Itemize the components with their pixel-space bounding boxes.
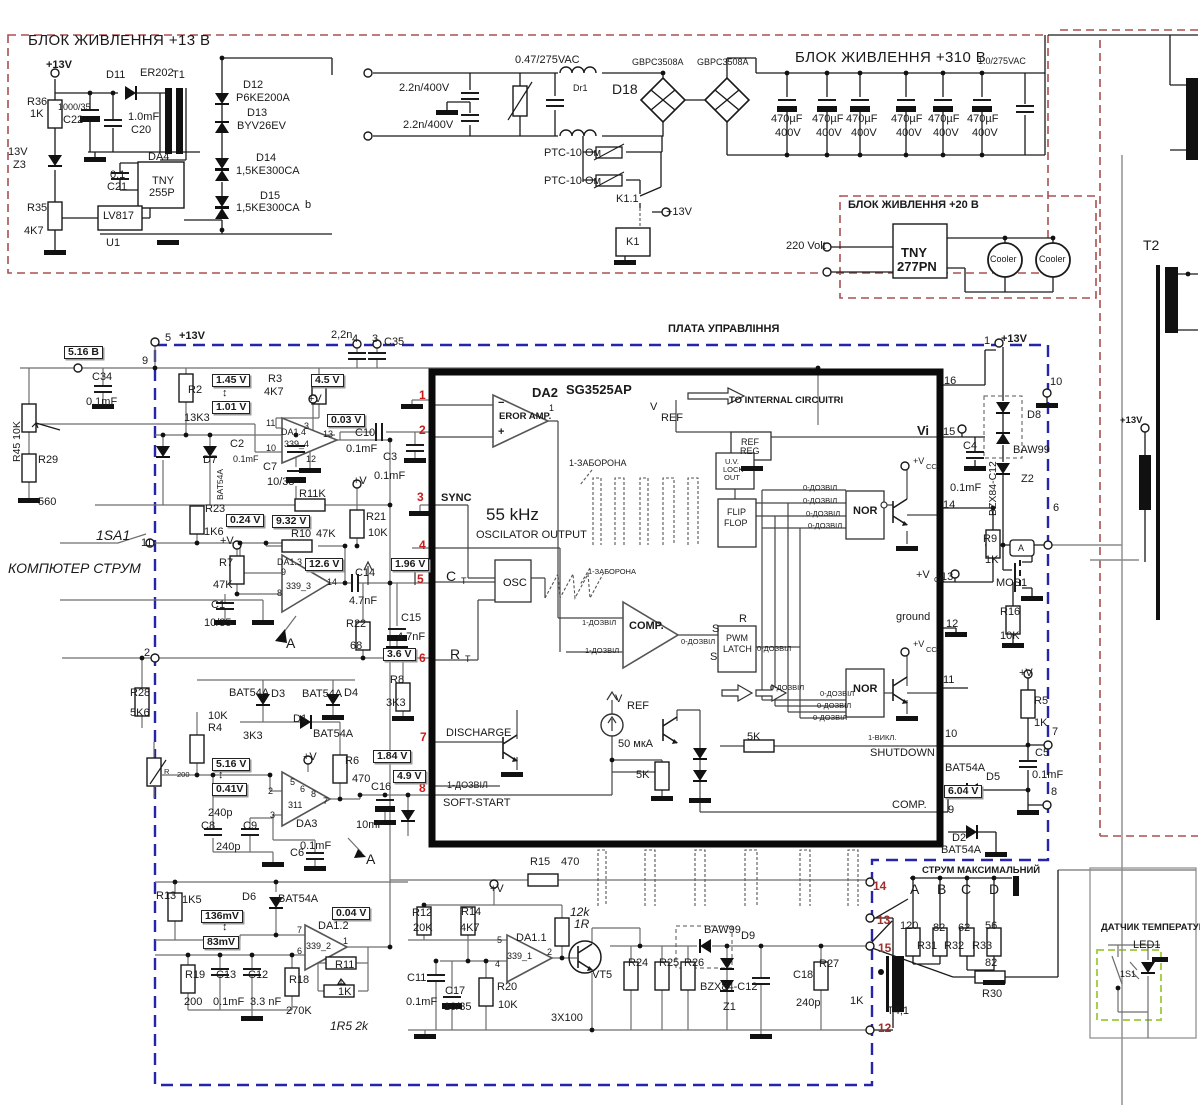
bottom-label-4: 4 <box>495 960 500 969</box>
left-label-1-96-v: 1.96 V <box>391 558 429 571</box>
chip-label-v: V <box>615 694 622 706</box>
left-label-10-35: 10/35 <box>204 618 232 630</box>
bottom-label-r26: R26 <box>684 958 704 970</box>
chip-label-0-дозвіл: 0-ДОЗВІЛ <box>803 484 837 492</box>
control_top-label-c7: C7 <box>263 462 277 474</box>
da3_area-label-bat54a: BAT54A <box>229 688 269 700</box>
chip-label-+v: +V <box>913 640 924 649</box>
right_rail-label-d2: D2 <box>952 833 966 845</box>
chip-label-15: 15 <box>943 427 955 439</box>
bottom_right-label-d: D <box>989 882 999 897</box>
left-label-9-32-v: 9.32 V <box>272 515 310 528</box>
bottom_right-label-120: 120 <box>900 921 918 933</box>
chip-label-+v: +V <box>913 457 924 466</box>
bottom-label-0-1mf: 0.1mF <box>213 997 244 1009</box>
da3_area-label-da3: DA3 <box>296 819 317 831</box>
da3_area-label-8: 8 <box>311 790 316 799</box>
chip-label-5k: 5K <box>636 770 649 782</box>
chip-label-1: 1 <box>419 389 426 402</box>
mains-label-ptc-10-ом: PTC-10 Ом <box>544 176 601 188</box>
bottom_right-label-b: B <box>937 882 946 897</box>
psu13-label-er202: ER202 <box>140 68 174 80</box>
bottom_right-label-56: 56 <box>985 921 997 933</box>
psu13-label-d12: D12 <box>243 80 263 92</box>
control_top-label-13: 13 <box>323 430 333 439</box>
control_top-label-d7: D7 <box>203 455 217 467</box>
right_rail-label-10k: 10K <box>1000 631 1020 643</box>
da3_area-label-240p: 240p <box>216 842 240 854</box>
da3_area-label-240p: 240p <box>208 808 232 820</box>
bottom-label-83mv: 83mV <box>203 936 239 949</box>
control_top-label-r21: R21 <box>366 512 386 524</box>
psu13-label-1-5ke300ca: 1,5KE300CA <box>236 203 300 215</box>
control_top-label-0-1mf: 0.1mF <box>346 444 377 456</box>
control_top-label-4k7: 4K7 <box>264 387 284 399</box>
chip-label-1: 1 <box>549 404 554 413</box>
psu-13v-title: БЛОК ЖИВЛЕННЯ +13 В <box>28 33 210 49</box>
control_top-label-c2: C2 <box>230 439 244 451</box>
right_rail-label-6-04-v: 6.04 V <box>944 785 982 798</box>
right_rail-label-bat54a: BAT54A <box>941 845 981 857</box>
bottom_right-label-1s1: 1S1 <box>1120 970 1136 979</box>
right_rail-label-r9: R9 <box>983 534 997 546</box>
da3_area-label-c16: C16 <box>371 782 391 794</box>
chip-label-1-викл: 1-ВИКЛ. <box>868 734 896 742</box>
psu13-label-d11: D11 <box>106 70 125 82</box>
bottom-label-200: 200 <box>184 997 202 1009</box>
psu13-label-1-5ke300ca: 1,5KE300CA <box>236 166 300 178</box>
chip-label-pwm: PWM <box>726 634 748 643</box>
left-label-3k3: 3K3 <box>386 698 406 710</box>
left-label-12-6-v: 12.6 V <box>305 558 343 571</box>
chip-label-: − <box>498 398 504 410</box>
psu310-label-470µf: 470µF <box>812 114 843 126</box>
psu13-label-r35: R35 <box>27 203 47 215</box>
control_top-label-bat54a: BAT54A <box>216 469 225 500</box>
da3_area-label-2: 2 <box>268 787 273 796</box>
da3_area-label-4-9-v: 4.9 V <box>393 770 426 783</box>
bottom_right-label-led1: LED1 <box>1133 940 1161 952</box>
control_top-label-1-45-v: 1.45 V <box>212 374 250 387</box>
control_top-label-c35: C35 <box>384 337 404 349</box>
control_top-label-10-35: 10/35 <box>267 477 295 489</box>
psu13-label-p6ke200a: P6KE200A <box>236 93 290 105</box>
chip-label-cc: CC <box>926 646 937 654</box>
control_top-label-c10: C10 <box>355 428 375 440</box>
bottom_right-label-a: A <box>910 882 919 897</box>
right_rail-label-+13v: +13V <box>1001 334 1027 346</box>
da3_area-label-c9: C9 <box>243 821 257 833</box>
chip-label-out: OUT <box>724 474 740 482</box>
psu13-label-u1: U1 <box>106 238 120 250</box>
t2-label-+13v: +13V <box>1120 416 1142 426</box>
psu310-label-400v: 400V <box>775 128 801 140</box>
psu13-label-0-1: 0.1 <box>110 170 125 182</box>
bottom-label-10-35: 10/35 <box>444 1002 472 1014</box>
psu20-label-tny: TNY <box>901 246 927 260</box>
chip-label-0-дозвіл: 0-ДОЗВІЛ <box>803 497 837 505</box>
chip-label-comp: COMP. <box>629 621 664 633</box>
chip-label-ref: REF <box>627 701 649 713</box>
da3_area-label-d3: D3 <box>271 689 285 701</box>
bottom-label-10k: 10K <box>498 1000 518 1012</box>
chip-label-sg3525ap: SG3525AP <box>566 383 632 397</box>
chip-label-55-khz: 55 kHz <box>486 506 539 524</box>
bottom-label-1k: 1K <box>338 987 351 999</box>
psu20-label-cooler: Cooler <box>1039 255 1066 264</box>
bottom-label-r12: R12 <box>412 908 432 920</box>
bottom_right-label-12: 12 <box>878 1022 891 1035</box>
psu13-label-d13: D13 <box>247 108 267 120</box>
left-label-r29: R29 <box>38 455 58 467</box>
da3_area-label-6: 6 <box>300 785 305 794</box>
psu13-label-255p: 255P <box>149 188 175 200</box>
chip-label-4: 4 <box>419 539 426 552</box>
current-select-title: СТРУМ МАКСИМАЛЬНИЙ <box>922 866 1040 876</box>
chip-label-+: + <box>498 427 504 439</box>
bottom-label-r20: R20 <box>497 982 517 994</box>
chip-label-11: 11 <box>943 675 954 687</box>
psu13-label-1k: 1K <box>30 109 43 121</box>
bottom_right-label-62: 62 <box>958 923 970 935</box>
psu-20v-title: БЛОК ЖИВЛЕННЯ +20 В <box>848 200 979 212</box>
bottom-label-c11: C11 <box>407 973 426 985</box>
psu13-label-t1: T1 <box>172 70 185 82</box>
bottom_right-label-82: 82 <box>985 958 997 970</box>
da3_area-label-5: 5 <box>290 778 295 787</box>
bottom-label-baw99: BAW99 <box>704 925 741 937</box>
bottom-label-20k: 20K <box>413 923 433 935</box>
mains-label-2-2n-400v: 2.2n/400V <box>399 83 449 95</box>
left-label-r45-10k: R45 10K <box>12 421 23 462</box>
bottom-label-c17: C17 <box>445 986 465 998</box>
psu13-label-da4: DA4 <box>148 152 169 164</box>
chip-label-0-дозвіл: 0-ДОЗВІЛ <box>757 645 791 653</box>
left-label-8: 8 <box>277 589 282 598</box>
control_top-label-5-16-в: 5.16 В <box>64 346 103 359</box>
control_top-label-12: 12 <box>306 455 316 464</box>
chip-label-0-дозвіл: 0-ДОЗВІЛ <box>813 714 847 722</box>
bottom_right-label-82: 82 <box>933 923 945 935</box>
control_top-label-r2: R2 <box>188 385 202 397</box>
da3_area-label-470: 470 <box>352 774 370 786</box>
control_top-label-+v: +V <box>353 476 367 488</box>
mains-label-dr1: Dr1 <box>573 84 588 93</box>
da3_area-label-200: 200 <box>177 771 190 779</box>
left-label-5k6: 5K6 <box>130 708 150 720</box>
chip-label-flip: FLIP <box>727 508 746 517</box>
chip-label-s: S <box>712 624 719 636</box>
psu310-label-400v: 400V <box>972 128 998 140</box>
left-label-c14: C14 <box>355 568 375 580</box>
left-label-a: A <box>286 636 295 651</box>
right_rail-label-r5: R5 <box>1034 696 1048 708</box>
left-label-r8: R8 <box>390 675 404 687</box>
right_rail-label-bat54a: BAT54A <box>945 763 985 775</box>
psu310-label-400v: 400V <box>896 128 922 140</box>
da3_area-label-3k3: 3K3 <box>243 731 263 743</box>
right_rail-label-d5: D5 <box>986 772 1000 784</box>
bottom-label-6: 6 <box>297 947 302 956</box>
bottom_right-label-r31: R31 <box>917 941 937 953</box>
bottom-label-r14: R14 <box>461 907 481 919</box>
bottom_right-label-13: 13 <box>877 914 890 927</box>
control-board-title: ПЛАТА УПРАВЛІННЯ <box>668 324 779 336</box>
psu13-label-+13v: +13V <box>46 60 72 72</box>
chip-label-flop: FLOP <box>724 519 748 528</box>
chip-label-16: 16 <box>944 376 956 388</box>
left-label-560: 560 <box>38 497 56 509</box>
right_rail-label-8: 8 <box>1051 787 1057 799</box>
bottom_right-label-r32: R32 <box>944 941 964 953</box>
bottom-label-3-3-nf: 3.3 nF <box>250 997 281 1009</box>
mains-label-d18: D18 <box>612 82 638 97</box>
mains-label-gbpc3508a: GBPC3508A <box>632 58 684 67</box>
left-label-r28: R28 <box>130 688 150 700</box>
bottom_right-label-14: 14 <box>873 880 886 893</box>
bottom-label-0-1mf: 0.1mF <box>406 997 437 1009</box>
bottom-label-1k: 1K <box>850 996 863 1008</box>
bottom-label-c18: C18 <box>793 970 813 982</box>
psu310-label-400v: 400V <box>816 128 842 140</box>
mains-label-+13v: +13V <box>666 207 692 219</box>
chip-label-3: 3 <box>417 491 424 504</box>
control_top-label-r3: R3 <box>268 374 282 386</box>
control_top-label-c3: C3 <box>383 452 397 464</box>
mains-label-k1-1: K1.1 <box>616 194 639 206</box>
chip-label-vi: Vi <box>917 424 929 438</box>
psu310-label-470µf: 470µF <box>928 114 959 126</box>
schematic-labels: БЛОК ЖИВЛЕННЯ +13 В+13VD11ER202T1R361K10… <box>0 0 1200 1116</box>
right_rail-label-d8: D8 <box>1027 410 1041 422</box>
da3_area-label-10mf: 10mF <box>356 820 384 832</box>
chip-label-5k: 5K <box>747 732 760 744</box>
bottom_right-label-t4-1: T4,1 <box>887 1006 909 1018</box>
left-label-+v: +V <box>220 536 234 548</box>
bottom_right-label-r33: R33 <box>972 941 992 953</box>
bottom-label-470: 470 <box>561 857 579 869</box>
chip-label-da2: DA2 <box>532 386 558 400</box>
psu13-label-r36: R36 <box>27 97 47 109</box>
da3_area-label-r4: R4 <box>208 723 222 735</box>
chip-label-t: T <box>465 655 471 664</box>
control_top-label-9: 9 <box>142 356 148 368</box>
bottom-label-vt5: VT5 <box>592 970 612 982</box>
da3_area-label-d4: D4 <box>344 688 358 700</box>
psu13-label-tny: TNY <box>152 176 174 188</box>
chip-label-10: 10 <box>945 729 957 741</box>
da3_area-label-r6: R6 <box>345 756 359 768</box>
mains-label-k1: K1 <box>626 237 639 249</box>
bottom-label-339-2: 339_2 <box>306 942 331 951</box>
chip-label-0-дозвіл: 0-ДОЗВІЛ <box>817 702 851 710</box>
psu13-label-d15: D15 <box>260 191 280 203</box>
da3_area-label-0-1mf: 0.1mF <box>300 841 331 853</box>
t2-label-t2: T2 <box>1143 238 1159 253</box>
da3_area-label-1-84-v: 1.84 V <box>373 750 411 763</box>
da3_area-label-c8: C8 <box>201 821 215 833</box>
bottom-label-240p: 240p <box>796 998 820 1010</box>
left-label-c1: C1 <box>211 600 225 612</box>
bottom-label-2: 2 <box>547 948 552 957</box>
bottom-label-z1: Z1 <box>723 1002 736 1014</box>
bottom-label-r18: R18 <box>289 975 309 987</box>
bottom-label-5: 5 <box>497 936 502 945</box>
psu13-label-z3: Z3 <box>13 160 26 172</box>
chip-label-14: 14 <box>943 500 955 512</box>
bottom-label-c12: C12 <box>248 970 268 982</box>
bottom-label-0-04-v: 0.04 V <box>332 907 370 920</box>
da3_area-label-7: 7 <box>323 797 328 806</box>
control_top-label-13k3: 13K3 <box>184 413 210 425</box>
da3_area-label-bat54a: BAT54A <box>313 729 353 741</box>
da3_area-label-a: A <box>366 852 375 867</box>
bottom-label-d9: D9 <box>741 931 755 943</box>
right_rail-label-z2: Z2 <box>1021 474 1034 486</box>
control_top-label-c34: C34 <box>92 372 112 384</box>
schematic-canvas: OSC <box>0 0 1200 1116</box>
da3_area-label-r: R <box>164 768 169 776</box>
right_rail-label-c5: C5 <box>1035 748 1049 760</box>
chip-label-1-дозвіл: 1-ДОЗВІЛ <box>582 619 616 627</box>
chip-label-comp: COMP. <box>892 800 927 812</box>
psu20-label-220-volt: 220 Volt <box>786 241 826 253</box>
chip-label-to-internal-circuitri: TO INTERNAL CIRCUITRI <box>729 396 843 406</box>
bottom-label-r19: R19 <box>185 970 205 982</box>
control_top-label-1-01-v: 1.01 V <box>212 401 250 414</box>
left-label-4-7nf: 4.7nF <box>349 596 377 608</box>
bottom-label-r11: R11 <box>335 960 354 972</box>
da3_area-label-d1: D1 <box>293 714 307 726</box>
right_rail-label-0-1mf: 0.1mF <box>950 483 981 495</box>
bottom-label-+v: +V <box>490 884 504 896</box>
bottom-label-r24: R24 <box>628 958 648 970</box>
right_rail-label-baw99: BAW99 <box>1013 445 1050 457</box>
mains-label-0-47-275vac: 0.47/275VAC <box>515 55 580 67</box>
control_top-label-: ↕ <box>222 388 228 400</box>
bottom-label-d6: D6 <box>242 892 256 904</box>
left-label-r7: R7 <box>219 558 233 570</box>
psu13-label-byv26ev: BYV26EV <box>237 121 286 133</box>
left-label-c15: C15 <box>401 613 421 625</box>
chip-label-0-дозвіл: 0-ДОЗВІЛ <box>806 510 840 518</box>
chip-label-cc: CC <box>926 463 937 471</box>
psu310-label-1-0-275vac: 1.0/275VAC <box>978 57 1026 66</box>
bottom_right-label-r30: R30 <box>982 989 1002 1001</box>
control_top-label-0-1mf: 0.1mF <box>374 471 405 483</box>
chip-label-reg: REG <box>740 447 760 456</box>
chip-label-v: V <box>650 402 657 414</box>
psu310-label-470µf: 470µF <box>846 114 877 126</box>
left-label-47k: 47K <box>316 529 336 541</box>
bottom-label-4k7: 4K7 <box>460 923 480 935</box>
bottom-label-7: 7 <box>297 926 302 935</box>
bottom-label-c13: C13 <box>216 970 236 982</box>
right_rail-label-c4: C4 <box>963 441 977 453</box>
bottom-label-339-1: 339_1 <box>507 952 532 961</box>
chip-label-eror-amp: EROR AMP. <box>499 412 551 422</box>
left-label-r23: R23 <box>205 504 225 516</box>
left-label-47k: 47K <box>213 580 233 592</box>
bottom-label-bat54a: BAT54A <box>278 894 318 906</box>
right_rail-label-r16: R16 <box>1000 607 1020 619</box>
chip-label-0-дозвіл: 0-ДОЗВІЛ <box>681 638 715 646</box>
bottom-label-r13: R13 <box>156 891 176 903</box>
left-label-68: 68 <box>350 641 362 653</box>
control_top-label-4-5-v: 4.5 V <box>311 374 344 387</box>
chip-label-6: 6 <box>419 652 426 665</box>
right_rail-label-bzx84-c12: BZX84-C12 <box>988 461 999 516</box>
psu13-label-c20: C20 <box>131 125 151 137</box>
chip-label-1-дозвіл: 1-ДОЗВІЛ <box>447 781 488 790</box>
control_top-label-2-2n: 2,2n <box>331 330 352 342</box>
chip-label-sync: SYNC <box>441 493 472 505</box>
chip-label-ground: ground <box>896 612 930 624</box>
bottom-label-1: 1 <box>343 937 348 946</box>
control_top-label-339-4: 339_4 <box>284 440 309 449</box>
chip-label-nor: NOR <box>853 506 877 518</box>
chip-label-c: C <box>446 569 456 584</box>
chip-label-5: 5 <box>417 573 424 586</box>
psu13-label-c22: C22 <box>63 115 83 127</box>
bottom-label-1r5-2k: 1R5 2k <box>330 1020 368 1033</box>
control_top-label-3: 3 <box>372 334 378 346</box>
bottom-label-r27: R27 <box>819 959 839 971</box>
bottom-label-bzx84-c12: BZX84-C12 <box>700 982 757 994</box>
control_top-label-0-03-v: 0.03 V <box>327 414 365 427</box>
chip-label-oscilator-output: OSCILATOR OUTPUT <box>476 530 587 542</box>
da3_area-label-311: 311 <box>288 801 302 810</box>
control_top-label-11: 11 <box>266 419 275 428</box>
chip-label-ref: REF <box>661 413 683 425</box>
psu13-label-b: b <box>305 200 311 212</box>
control_top-label-5: 5 <box>165 333 171 345</box>
bottom-label-1r: 1R <box>574 918 589 931</box>
mains-label-gbpc3508a: GBPC3508A <box>697 58 749 67</box>
chip-label-r: R <box>450 647 460 662</box>
psu13-label-1000-35: 1000/35 <box>58 103 91 112</box>
bottom_right-label-c: C <box>961 882 971 897</box>
chip-label-8: 8 <box>419 782 426 795</box>
da3_area-label-3: 3 <box>270 811 275 820</box>
chip-label-0-дозвіл: 0-ДОЗВІЛ <box>820 690 854 698</box>
da3_area-label-: ↕ <box>218 770 224 782</box>
bottom-label-3x100: 3X100 <box>551 1013 583 1025</box>
right_rail-label-7: 7 <box>1052 727 1058 739</box>
psu310-label-470µf: 470µF <box>967 114 998 126</box>
psu310-label-470µf: 470µF <box>891 114 922 126</box>
chip-label-2: 2 <box>419 424 426 437</box>
da3_area-label-bat54a: BAT54A <box>302 689 342 701</box>
psu13-label-lv817: LV817 <box>103 211 134 223</box>
da3_area-label-10k: 10K <box>208 711 228 723</box>
right_rail-label-a: A <box>1018 544 1024 553</box>
chip-label-nor: NOR <box>853 684 877 696</box>
left-label-11: 11 <box>141 538 152 550</box>
control_top-label-0-1mf: 0.1mF <box>233 455 259 464</box>
bottom-label-r25: R25 <box>659 958 679 970</box>
right_rail-label-10: 10 <box>1050 377 1062 389</box>
psu13-label-c21: C21 <box>107 182 127 194</box>
chip-label-0-дозвіл: 0-ДОЗВІЛ <box>770 684 804 692</box>
mains-label-2-2n-400v: 2.2n/400V <box>403 120 453 132</box>
chip-label-0-дозвіл: 0-ДОЗВІЛ <box>808 522 842 530</box>
da3_area-label-0-41v: 0.41V <box>212 783 247 796</box>
chip-label-r: R <box>739 614 747 626</box>
left-label-2: 2 <box>144 648 150 660</box>
temp-sensor-title: ДАТЧИК ТЕМПЕРАТУРИ <box>1101 923 1200 933</box>
bottom-label-: ↕ <box>222 922 228 934</box>
